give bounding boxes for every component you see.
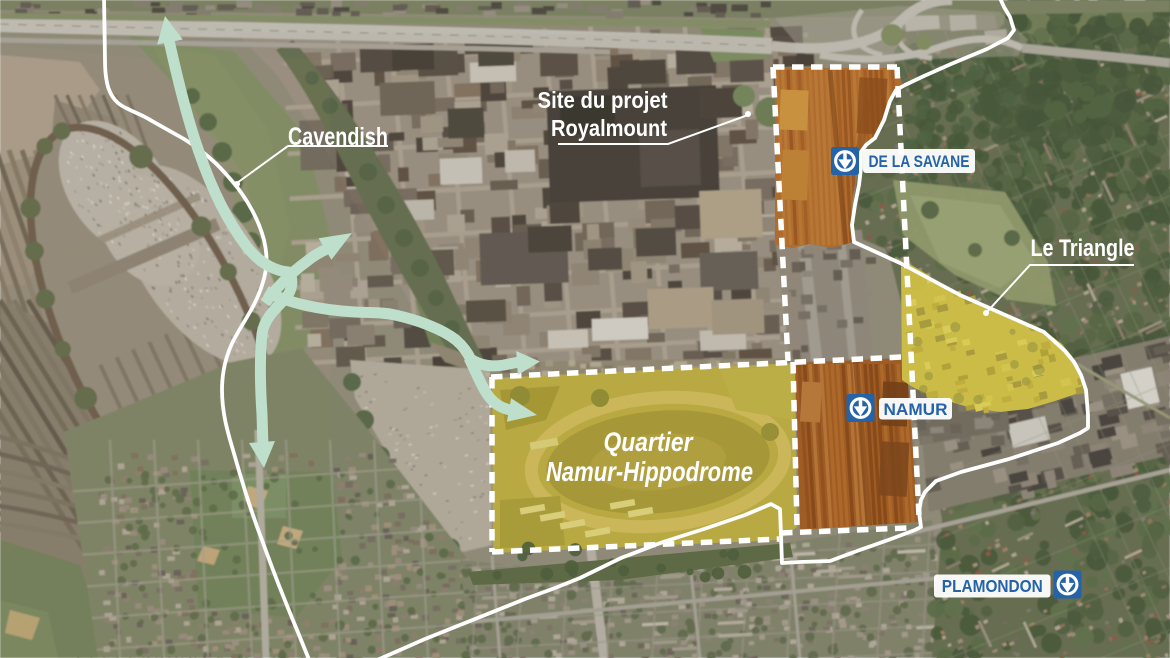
svg-text:PLAMONDON: PLAMONDON	[942, 576, 1043, 596]
svg-text:DE LA SAVANE: DE LA SAVANE	[869, 152, 970, 171]
svg-text:Namur-Hippodrome: Namur-Hippodrome	[546, 456, 753, 487]
svg-text:NAMUR: NAMUR	[884, 401, 948, 419]
svg-text:Royalmount: Royalmount	[551, 115, 667, 141]
svg-text:Cavendish: Cavendish	[288, 123, 388, 151]
svg-text:Le Triangle: Le Triangle	[1031, 235, 1135, 262]
svg-text:Quartier: Quartier	[604, 427, 694, 457]
svg-text:Site du projet: Site du projet	[538, 87, 668, 113]
